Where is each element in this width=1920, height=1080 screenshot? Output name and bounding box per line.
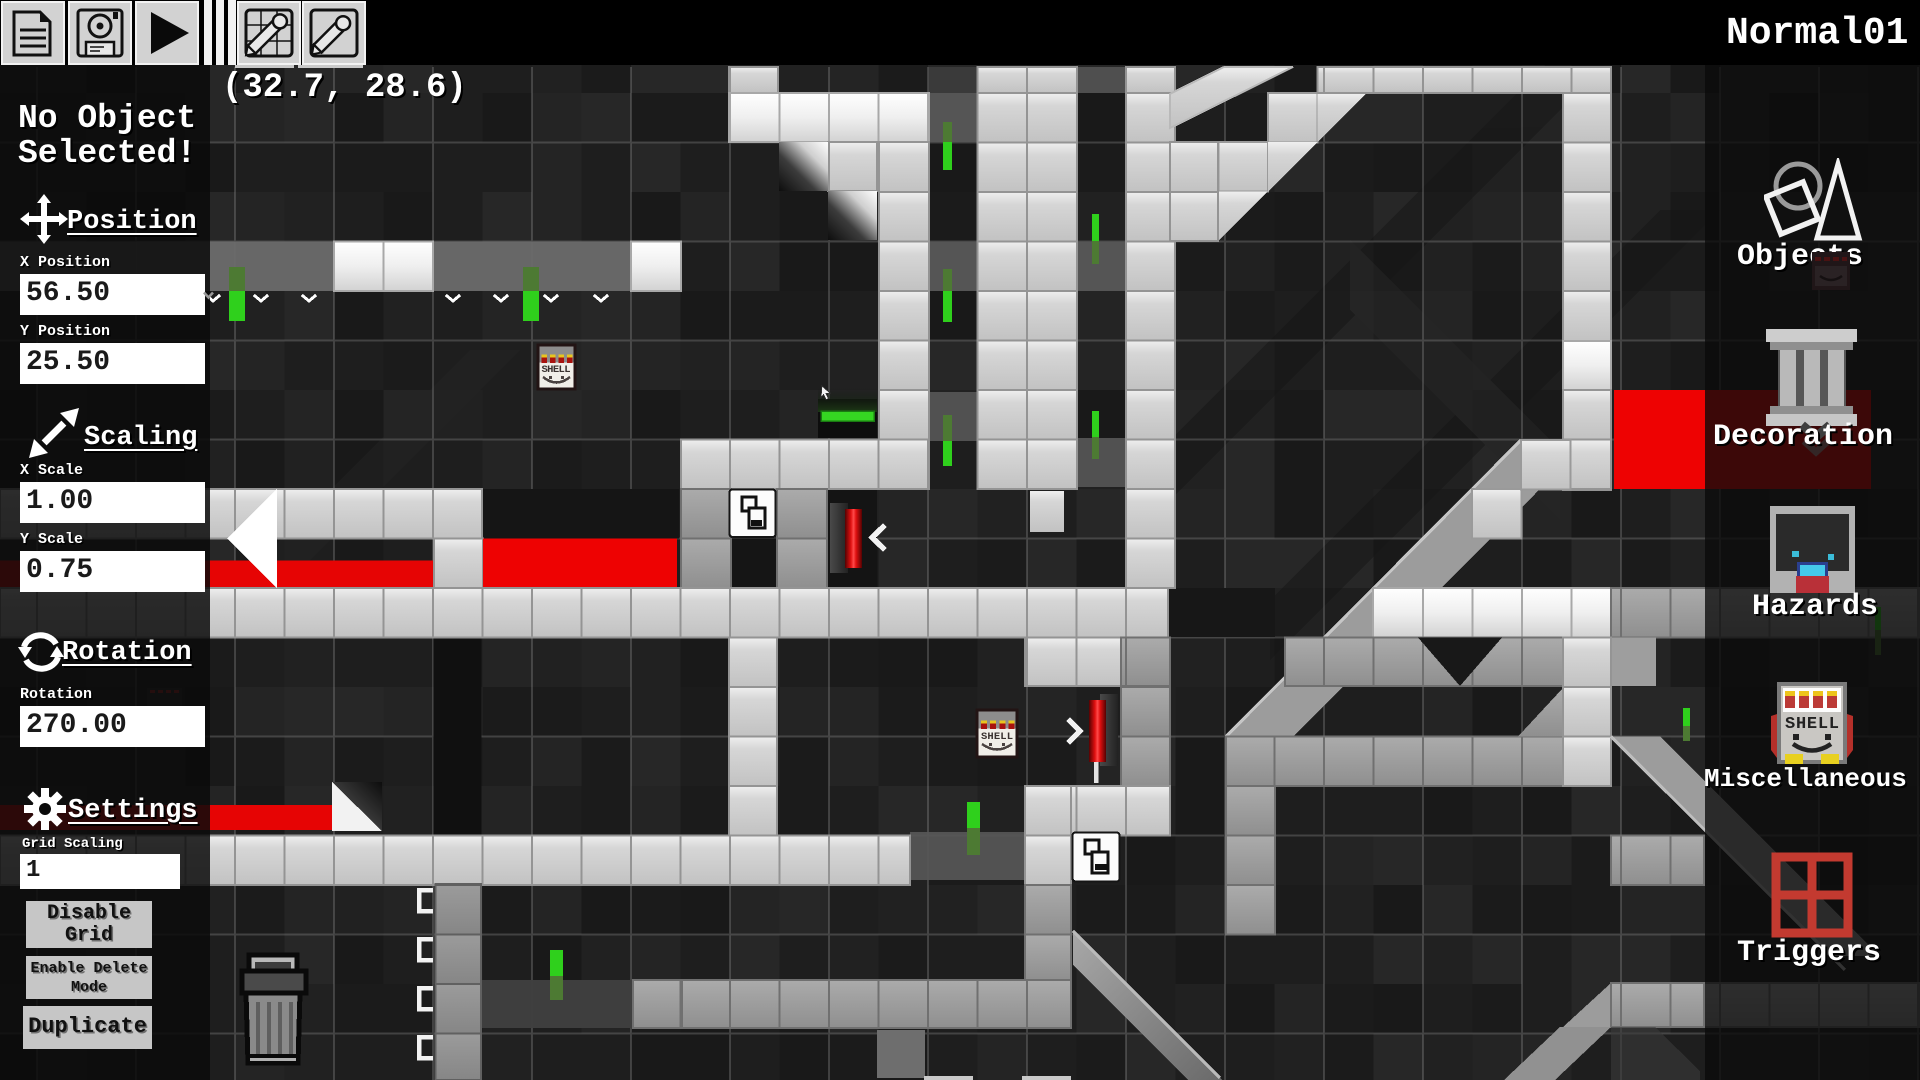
svg-text:SHELL: SHELL	[542, 364, 571, 376]
svg-text:SHELL: SHELL	[981, 731, 1013, 743]
svg-text:SHELL: SHELL	[1785, 715, 1839, 734]
